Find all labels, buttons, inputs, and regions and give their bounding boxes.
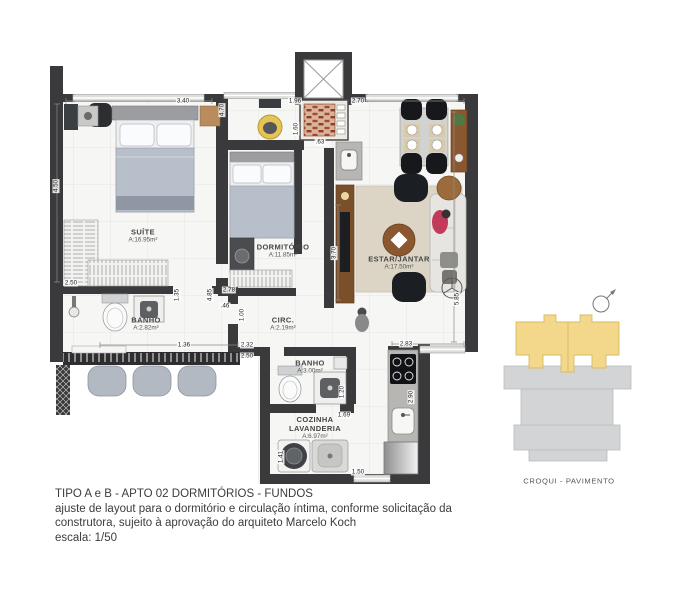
pillow [157,124,191,146]
toilet-tank [278,366,302,375]
dimension-label: 1.96 [288,98,302,105]
dimension-label: .46 [220,303,231,310]
dimension-label: .63 [315,139,326,146]
pedestal-sink [69,307,79,317]
pillow [120,124,154,146]
dimension-label: 2.70 [351,98,365,105]
caption-title: TIPO A e B - APTO 02 DORMITÓRIOS - FUNDO… [55,487,452,502]
dimension-label: 1.60 [293,122,300,136]
floor-plan-page: SUÍTEA:16.95m²DORMITÓRIOA:11.85m²ESTAR/J… [0,0,687,600]
pillow [233,165,261,183]
cooktop [390,354,416,384]
pet [263,122,277,134]
dimension-label: 2.50 [64,280,78,287]
plant [453,114,465,126]
dimension-label: 2.32 [240,342,254,349]
croqui-label: CROQUI - PAVIMENTO [523,477,614,486]
dimension-label: 4.50 [53,179,60,193]
barbecue-grill [300,100,348,140]
croqui-highlighted-units [516,315,619,372]
dimension-label: 5.85 [454,292,461,306]
fridge [384,442,418,474]
pillow [263,165,291,183]
cushion [440,252,458,268]
caption-scale: escala: 1/50 [55,531,452,546]
toilet [103,303,127,331]
dimension-label: 1.20 [339,385,346,399]
dimension-label: 4.85 [207,288,214,302]
terrace-planters [88,366,216,396]
dimension-label: 1.36 [177,342,191,349]
dimension-label: 1.35 [174,288,181,302]
toilet [279,376,301,402]
elevator-shaft [295,52,352,105]
kitchen-sink [392,408,414,434]
dimension-label: 1.50 [351,469,365,476]
tv [340,212,350,272]
caption-block: TIPO A e B - APTO 02 DORMITÓRIOS - FUNDO… [55,487,452,545]
dimension-label: 2.83 [399,341,413,348]
croqui-building [504,366,631,461]
bed-throw [116,196,194,210]
croqui-site-plan [504,289,631,461]
armchair [394,174,428,202]
gourmet-counter [336,142,362,180]
dimension-label: 1.00 [239,308,246,322]
tv-cabinet [64,104,78,130]
pouf [437,176,461,200]
bed-headboard [230,152,294,162]
terrace-parapet-wall [63,352,240,365]
wardrobe [88,260,168,286]
bed-headboard [112,106,198,120]
hatched-pillar [56,365,70,415]
caption-line: construtora, sujeito à aprovação do arqu… [55,516,452,531]
dimension-label: 3.70 [331,246,338,260]
nightstand [200,106,220,126]
north-arrow-icon [593,289,616,312]
dimension-label: 2.90 [408,390,415,404]
stool [235,249,249,263]
dimension-label: 4.70 [219,103,226,117]
wardrobe [230,270,292,287]
toilet-tank [102,294,128,303]
bench [72,346,126,353]
armchair [392,272,426,302]
dimension-label: 1.69 [337,412,351,419]
blanket [230,186,294,238]
dimension-label: 2.50 [240,353,254,360]
dimension-label: 3.40 [176,98,190,105]
dimension-label: 1.41 [278,450,285,464]
dimension-label: 2.78 [222,287,236,294]
caption-line: ajuste de layout para o dormitório e cir… [55,502,452,517]
shelf [259,99,281,108]
sink [334,357,347,369]
